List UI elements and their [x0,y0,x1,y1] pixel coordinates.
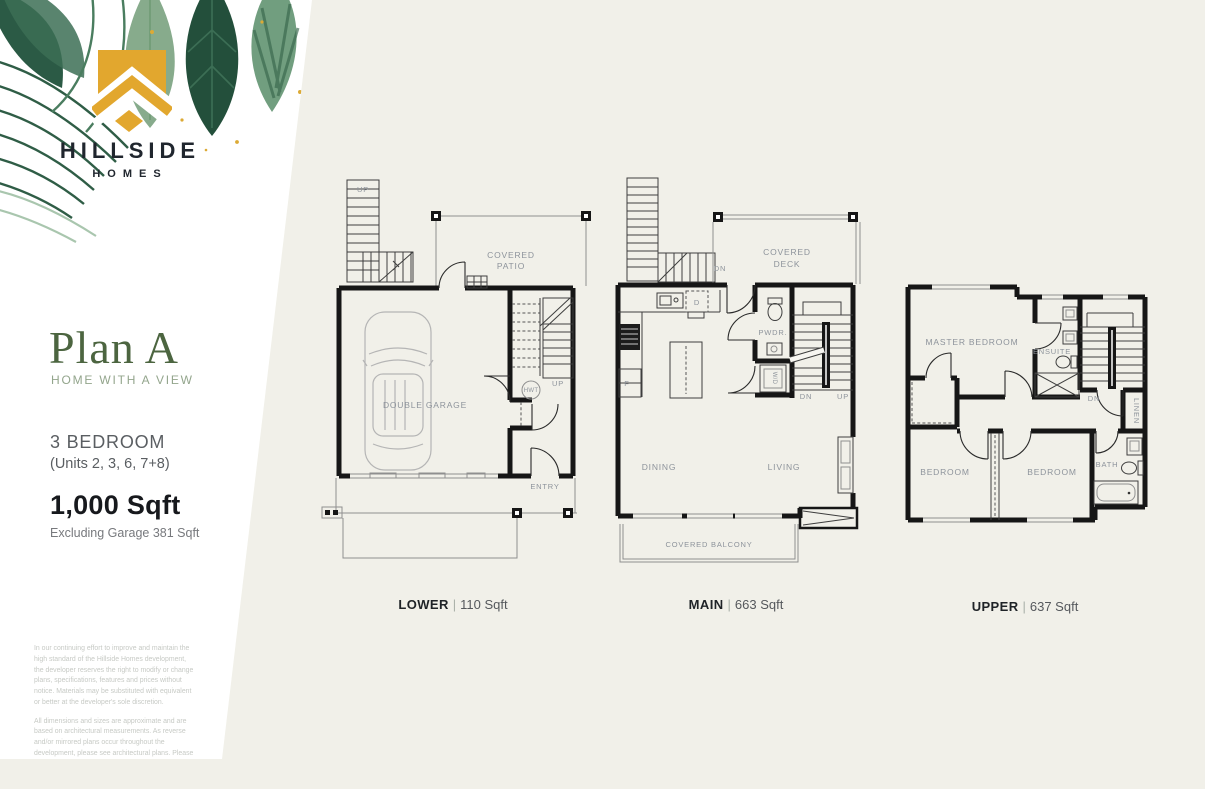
caption-divider: | [728,597,731,612]
garage-label: DOUBLE GARAGE [383,400,467,410]
disclaimer-text: In our continuing effort to improve and … [34,644,194,789]
hillside-homes-logo-icon [92,46,172,138]
bedroom-right-label: BEDROOM [1027,467,1077,477]
caption-divider: | [1022,599,1025,614]
master-bedroom-label: MASTER BEDROOM [926,337,1019,347]
walls [908,287,1145,520]
patio-door [439,262,465,288]
windows [923,285,1128,522]
lower-floor-plan: UP COVERED PATIO DOUBLE GARAGE [315,172,610,592]
brand-subtitle: HOMES [29,168,231,180]
stairs-up-label: UP [357,185,369,194]
dining-label: DINING [642,462,677,472]
stairs [790,302,853,390]
garage-door [350,473,498,478]
covered-patio [431,211,591,286]
disclaimer-paragraph-1: In our continuing effort to improve and … [34,644,194,709]
kitchen [618,290,720,398]
master-closet [912,353,953,423]
disclaimer-paragraph-2: All dimensions and sizes are approximate… [34,717,194,782]
living-label: LIVING [768,462,801,472]
walls [339,288,573,476]
plan-area-note: Excluding Garage 381 Sqft [50,526,199,540]
entry-label: ENTRY [530,482,559,491]
fireplace [800,508,857,528]
plan-units: (Units 2, 3, 6, 7+8) [50,456,170,472]
caption-divider: | [453,597,456,612]
stairs-dn-label: DN [1088,394,1100,403]
deck-door [727,285,755,313]
bottom-windows [633,514,782,518]
upper-floor-area: 637 Sqft [1030,599,1078,614]
patio-label-line1: COVERED [487,250,535,260]
lower-floor-name: LOWER [398,597,448,612]
plan-area: 1,000 Sqft [50,490,181,521]
stairs-up-label: UP [837,392,849,401]
lower-floor-area: 110 Sqft [460,597,507,612]
bedroom-divider-wall [991,433,999,520]
main-floor-caption: MAIN|663 Sqft [689,597,784,612]
page-title: Plan A [49,321,179,374]
lower-floor-caption: LOWER|110 Sqft [398,597,507,612]
hwt-label: HWT [524,388,539,394]
powder-label: PWDR. [759,328,788,337]
ensuite-label: ENSUITE [1033,347,1071,356]
exterior-stairs [347,180,413,282]
upper-floor-name: UPPER [972,599,1019,614]
stairs-dn-label: DN [800,392,812,401]
fridge-label: F [624,379,629,388]
interior-doors [484,376,558,430]
balcony-label: COVERED BALCONY [665,540,752,549]
main-floor-plan: COVERED DECK DN D F PWDR. [610,172,880,592]
brand-title: HILLSIDE [29,138,231,164]
main-floor-name: MAIN [689,597,724,612]
bath-label: BATH [1096,460,1119,469]
stairs [1080,313,1145,389]
entry-door [531,448,559,476]
washer-dryer-label: W/D [771,372,777,385]
bedroom-left-label: BEDROOM [920,467,970,477]
exterior-stairs [627,178,715,282]
brochure-page: { "colors": { "background": "#f1f0e9", "… [0,0,1205,759]
upper-floor-caption: UPPER|637 Sqft [972,599,1079,614]
car [363,312,433,470]
dishwasher-label: D [694,298,700,307]
main-floor-area: 663 Sqft [735,597,783,612]
interior-stairs [512,298,573,378]
walls [618,285,853,518]
linen-label: LINEN [1132,398,1141,424]
bath-fixtures [1094,438,1143,504]
deck-stairs-dn-label: DN [714,264,726,273]
window-niche [838,437,853,493]
deck-label-line2: DECK [774,259,801,269]
plan-tagline: HOME WITH A VIEW [51,373,194,387]
deck-label-line1: COVERED [763,247,811,257]
patio-label-line2: PATIO [497,261,525,271]
upper-floor-plan: ENSUITE DN LINEN BATH MASTER BEDROOM BED… [895,275,1170,590]
plan-bedrooms: 3 BEDROOM [50,432,165,453]
interior-stairs-up-label: UP [552,379,564,388]
